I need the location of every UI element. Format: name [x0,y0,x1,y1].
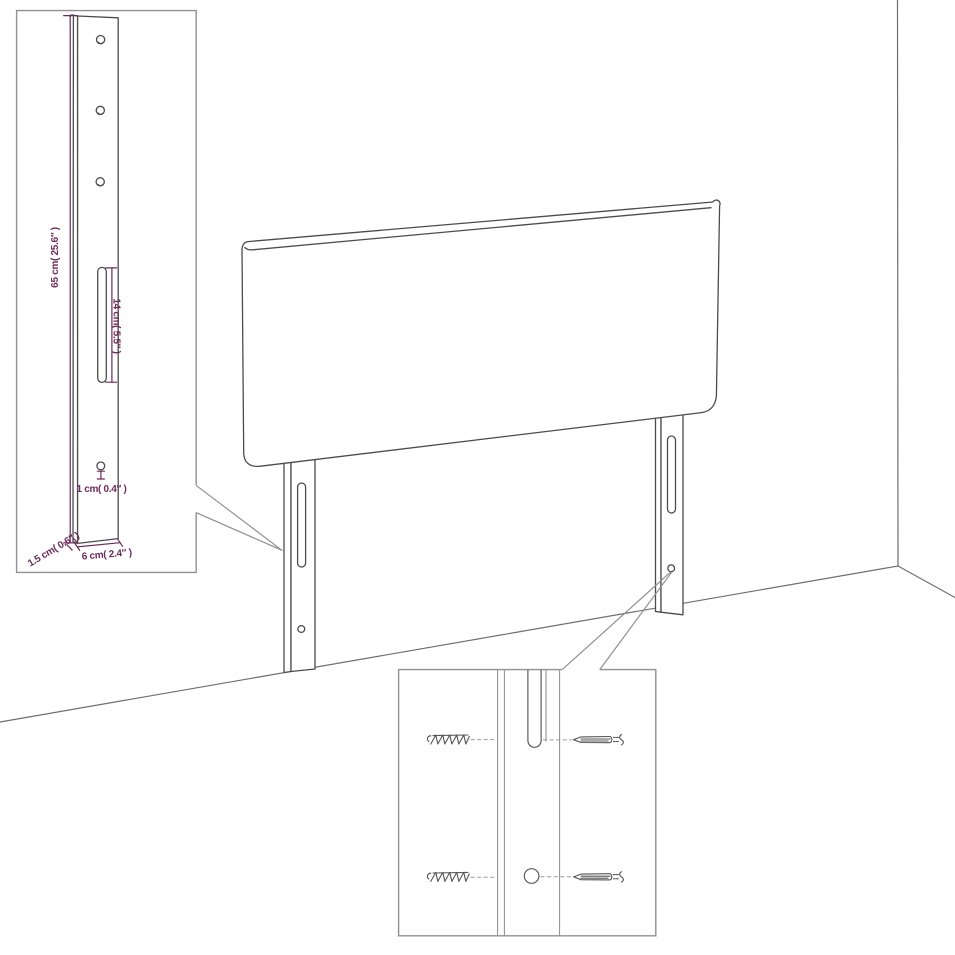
dimension-label-slot: 14 cm( 5.5″ ) [111,298,122,353]
screw-rail [433,735,468,736]
mounting-detail-callout [399,670,656,936]
left-leg [284,455,315,672]
headboard-dimension-diagram: 65 cm( 25.6″ ) 14 cm( 5.5″ ) 1 cm( 0.4″ … [0,0,955,955]
dimension-label-hole: 1 cm( 0.4″ ) [76,484,126,495]
diagram-svg: 65 cm( 25.6″ ) 14 cm( 5.5″ ) 1 cm( 0.4″ … [0,0,955,955]
leg-side-face [73,15,78,543]
leg-side-view [70,15,118,544]
right-leg [656,411,684,615]
left-leg-side-face [284,458,291,672]
wall-corner-line [898,0,899,566]
floor-line-right [898,566,955,598]
screw-rail [433,872,468,873]
callout-leaders [196,485,672,669]
leg-dimension-callout: 65 cm( 25.6″ ) 14 cm( 5.5″ ) 1 cm( 0.4″ … [17,11,197,573]
callout-box-border-bottom [399,670,656,936]
headboard-panel [242,200,720,466]
headboard [242,200,720,466]
left-leg-front-face [291,455,315,671]
leader-line-bottom-2 [600,572,672,669]
dimension-label-height: 65 cm( 25.6″ ) [50,227,61,288]
